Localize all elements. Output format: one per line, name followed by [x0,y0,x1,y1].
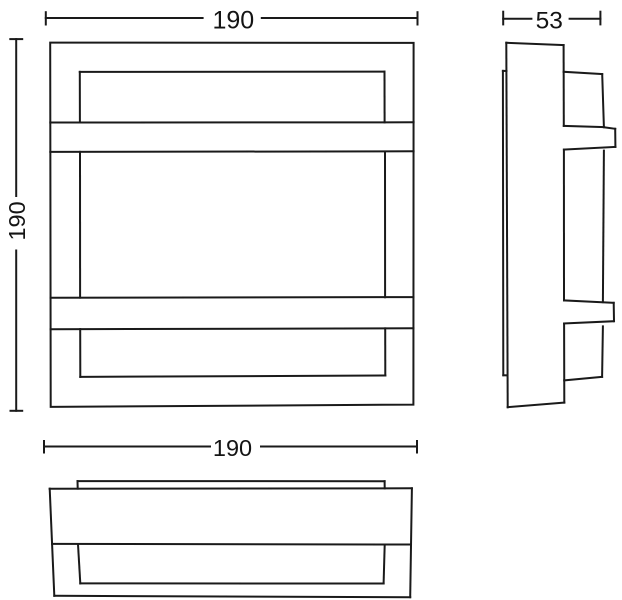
svg-text:190: 190 [213,435,252,461]
svg-text:190: 190 [212,6,254,34]
svg-text:53: 53 [536,8,563,35]
svg-text:190: 190 [4,201,30,240]
